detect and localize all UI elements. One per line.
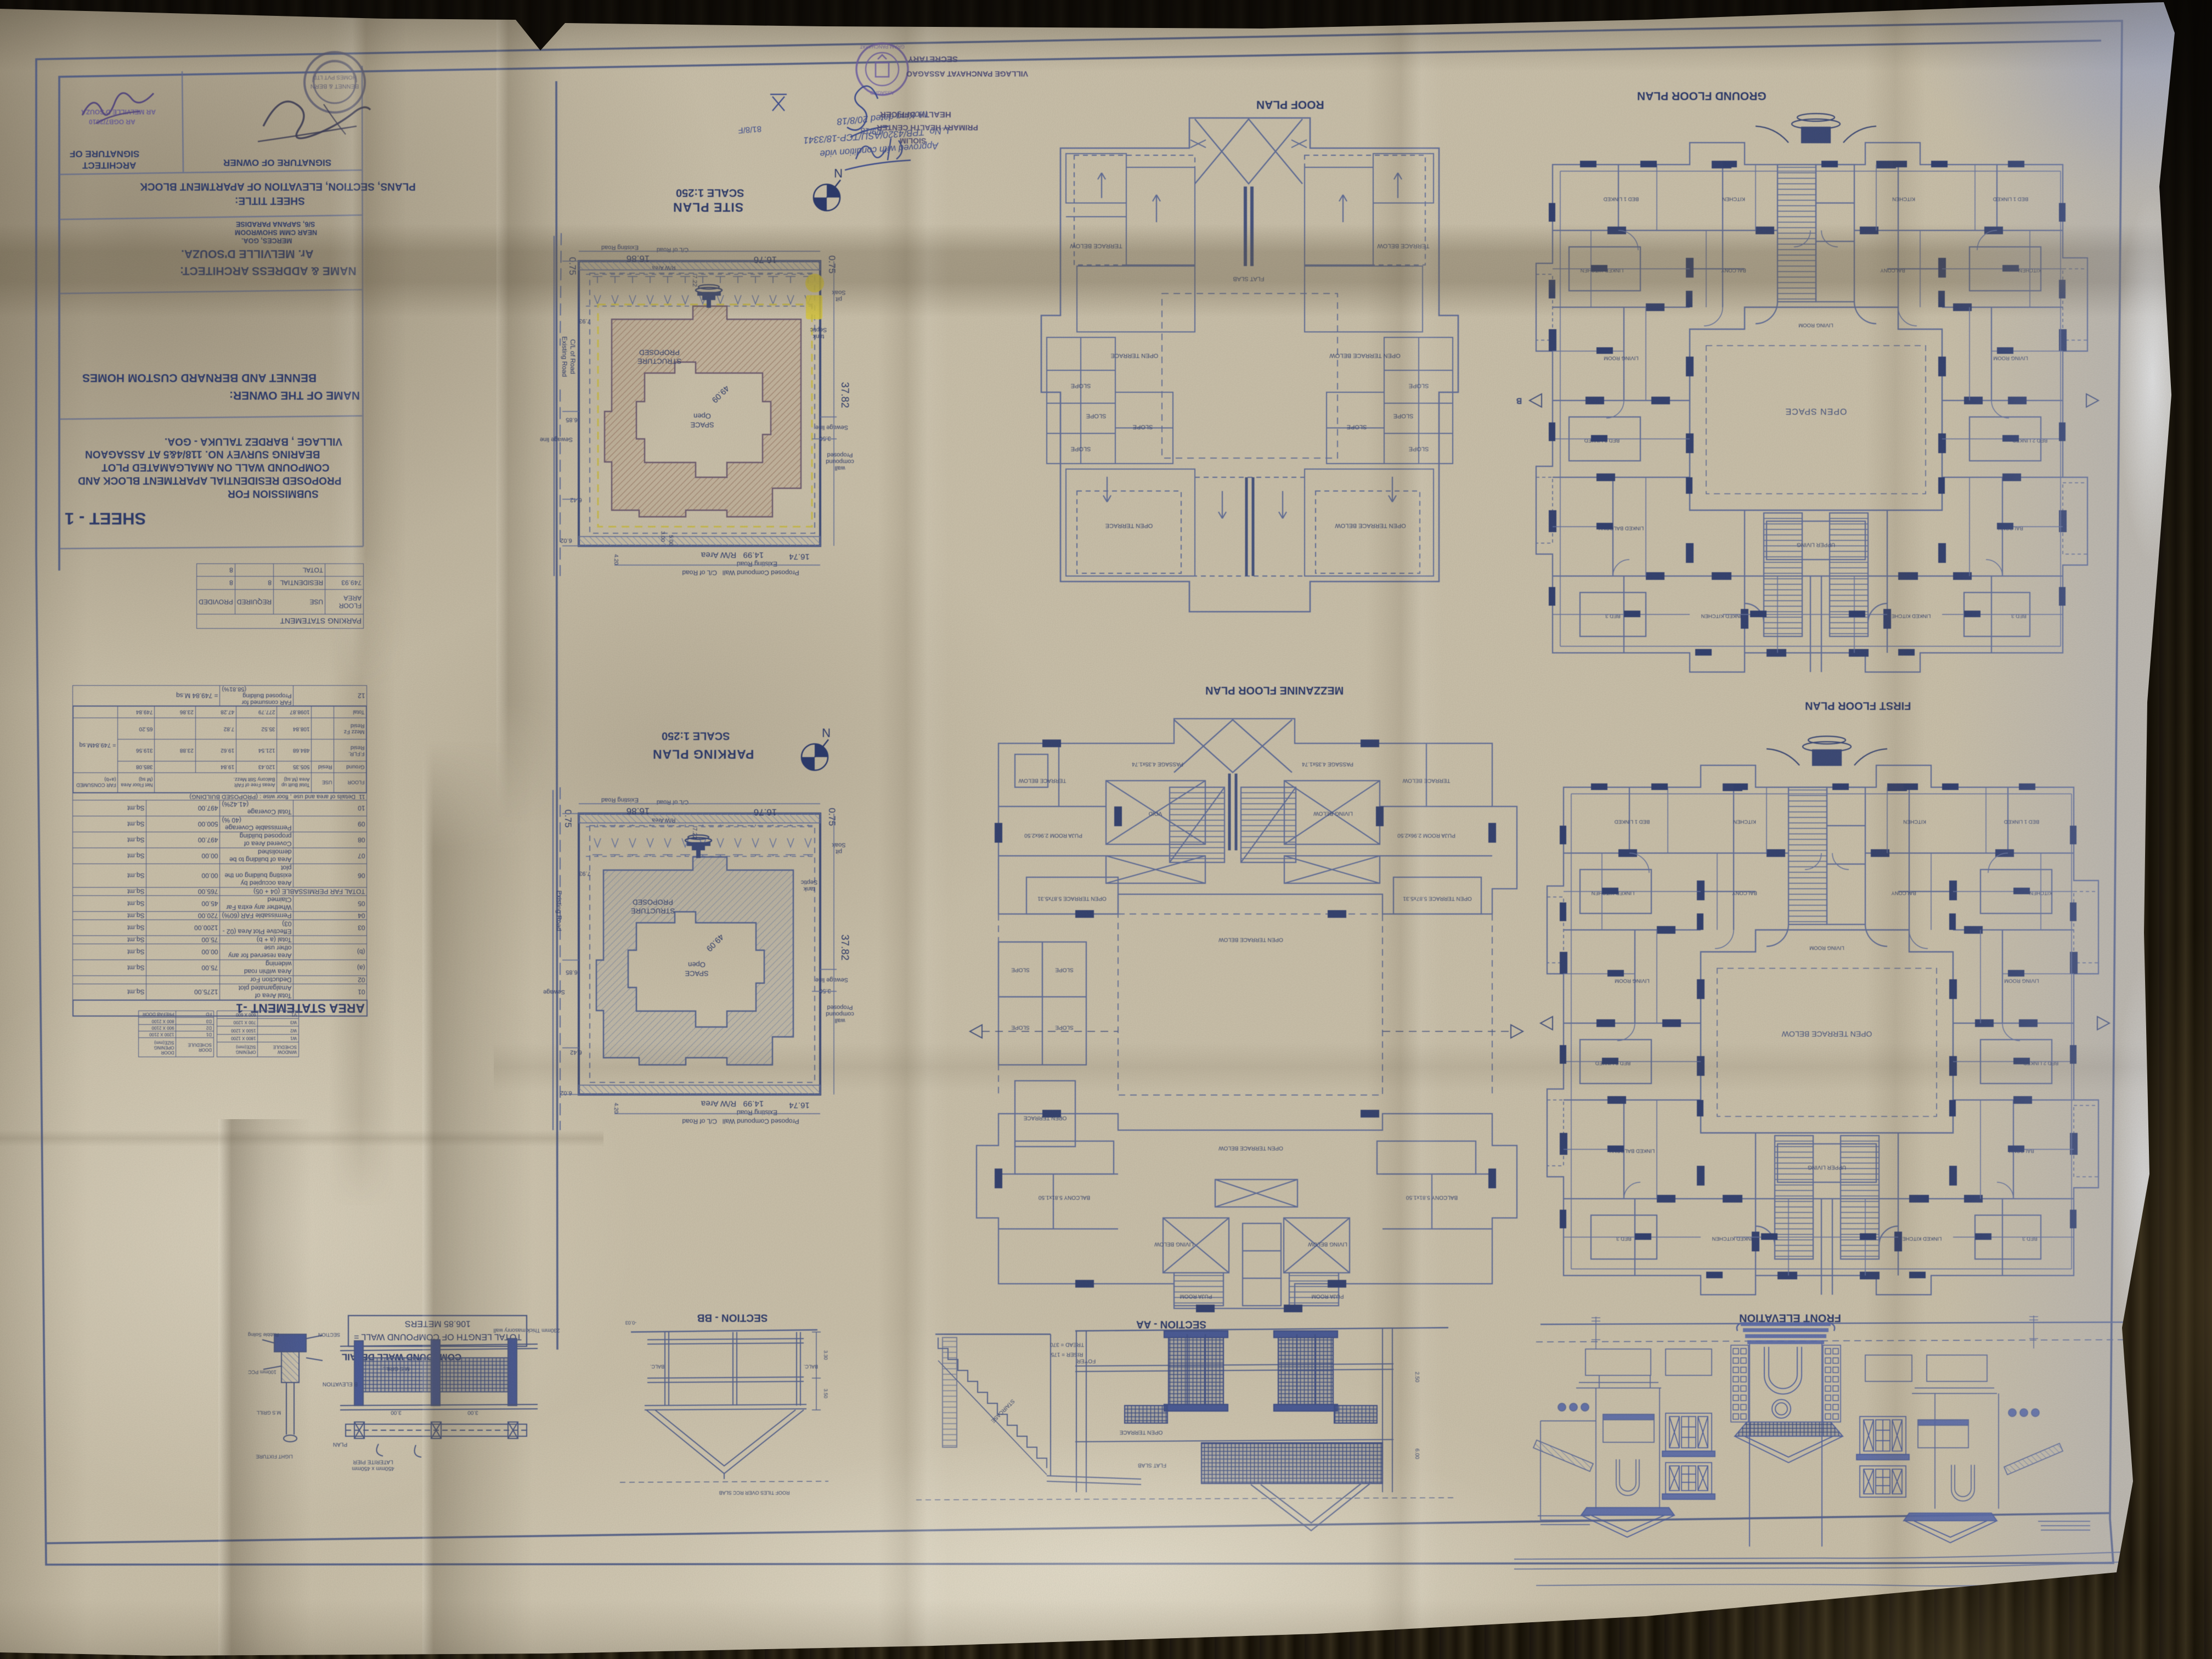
svg-text:Sewage line: Sewage line xyxy=(815,977,848,983)
svg-text:TERRACE BELOW: TERRACE BELOW xyxy=(1070,242,1122,249)
svg-text:pit: pit xyxy=(836,848,842,855)
svg-text:6.85: 6.85 xyxy=(566,416,577,423)
svg-text:BALC.: BALC. xyxy=(650,1364,664,1369)
svg-text:M.S GRILL: M.S GRILL xyxy=(382,1365,410,1372)
svg-text:Existing Road: Existing Road xyxy=(555,890,563,931)
svg-text:BED 3: BED 3 xyxy=(1605,613,1620,619)
svg-text:49.09: 49.09 xyxy=(704,932,726,953)
svg-text:OPEN TERRACE BELOW: OPEN TERRACE BELOW xyxy=(1781,1030,1872,1039)
svg-text:OPEN TERRACE 5.87x5.31: OPEN TERRACE 5.87x5.31 xyxy=(1037,895,1107,901)
svg-text:PLAN: PLAN xyxy=(333,1441,347,1447)
svg-text:OPEN TERRACE BELOW: OPEN TERRACE BELOW xyxy=(1329,352,1401,359)
svg-text:wall: wall xyxy=(835,1017,846,1024)
svg-text:Proposed Compound Wall C/L o: Proposed Compound Wall C/L of Road xyxy=(682,569,799,577)
svg-text:4.20: 4.20 xyxy=(613,1103,619,1114)
svg-text:BED 3: BED 3 xyxy=(2022,1235,2037,1242)
svg-text:LIGHT FIXTURE: LIGHT FIXTURE xyxy=(256,1454,292,1459)
svg-text:Existing Road: Existing Road xyxy=(601,797,639,803)
svg-text:SLOPE: SLOPE xyxy=(1011,1024,1030,1030)
svg-text:SECTION - AA: SECTION - AA xyxy=(1136,1318,1206,1330)
svg-text:7.93: 7.93 xyxy=(579,870,590,877)
svg-text:3.00: 3.00 xyxy=(659,531,665,542)
svg-text:PASSAGE 4.35x1.74: PASSAGE 4.35x1.74 xyxy=(1132,761,1183,767)
svg-text:Sewage line: Sewage line xyxy=(540,436,573,443)
svg-text:Proposed: Proposed xyxy=(827,1004,853,1011)
svg-text:BALCONY: BALCONY xyxy=(1891,890,1916,896)
svg-text:PROPOSED: PROPOSED xyxy=(633,898,673,906)
svg-text:VOID: VOID xyxy=(1149,810,1162,816)
svg-text:SLOPE: SLOPE xyxy=(1133,424,1153,430)
svg-text:C/L of Road: C/L of Road xyxy=(569,339,577,374)
svg-text:LINKED KITCHEN: LINKED KITCHEN xyxy=(1899,1235,1942,1242)
svg-text:OPEN SPACE: OPEN SPACE xyxy=(1785,407,1847,416)
svg-text:B ELEVATION: B ELEVATION xyxy=(323,1381,358,1387)
svg-text:UPPER LIVING: UPPER LIVING xyxy=(1808,1164,1846,1170)
svg-text:16.86: 16.86 xyxy=(627,806,650,816)
svg-text:Proposed Compound Wall C/L o: Proposed Compound Wall C/L of Road xyxy=(682,1118,799,1125)
svg-text:STAIRCASE: STAIRCASE xyxy=(990,1398,1016,1424)
svg-text:FLAT SLAB: FLAT SLAB xyxy=(1138,1462,1166,1468)
svg-text:KITCHEN: KITCHEN xyxy=(1733,819,1756,825)
svg-text:C/L of Road: C/L of Road xyxy=(657,799,689,805)
svg-text:Sewage line: Sewage line xyxy=(815,424,848,431)
svg-text:16.76: 16.76 xyxy=(754,255,777,265)
svg-text:tank: tank xyxy=(803,885,815,892)
svg-text:450mm x 450mm: 450mm x 450mm xyxy=(352,1465,394,1471)
svg-text:37.82: 37.82 xyxy=(839,934,850,961)
svg-text:LIVING ROOM: LIVING ROOM xyxy=(1798,322,1833,328)
svg-text:6.02: 6.02 xyxy=(560,537,572,544)
svg-text:BED 1 LINKED: BED 1 LINKED xyxy=(1615,819,1650,825)
svg-text:0.75: 0.75 xyxy=(827,808,837,826)
svg-text:KITCHEN: KITCHEN xyxy=(1892,196,1915,202)
svg-text:Open: Open xyxy=(693,412,711,420)
svg-text:Existing Road: Existing Road xyxy=(737,560,777,568)
svg-text:LATERITE PIER: LATERITE PIER xyxy=(353,1459,393,1465)
svg-text:BED 1 LINKED: BED 1 LINKED xyxy=(2004,819,2040,825)
svg-text:BALCONY 5.81x1.50: BALCONY 5.81x1.50 xyxy=(1406,1194,1458,1200)
svg-text:tank: tank xyxy=(812,333,824,340)
svg-text:UPPER LIVING: UPPER LIVING xyxy=(1797,541,1835,548)
svg-text:SLOPE: SLOPE xyxy=(1086,413,1107,419)
svg-text:6.42: 6.42 xyxy=(570,496,582,503)
svg-text:LIVING ROOM: LIVING ROOM xyxy=(1615,978,1649,984)
svg-text:PASSAGE 4.35x1.74: PASSAGE 4.35x1.74 xyxy=(1302,761,1353,767)
svg-text:Proposed: Proposed xyxy=(827,452,853,458)
svg-text:16.74: 16.74 xyxy=(789,1101,810,1110)
svg-text:SLOPE: SLOPE xyxy=(1409,382,1429,389)
svg-text:BED 3: BED 3 xyxy=(2011,613,2026,619)
svg-text:BALC.: BALC. xyxy=(804,1364,818,1369)
svg-text:M.S GRILL: M.S GRILL xyxy=(257,1410,281,1415)
svg-text:N: N xyxy=(822,726,831,740)
svg-text:100mm PCC: 100mm PCC xyxy=(248,1369,276,1375)
svg-text:wall: wall xyxy=(835,465,846,471)
svg-text:3.50: 3.50 xyxy=(819,988,831,994)
svg-text:OPEN TERRACE: OPEN TERRACE xyxy=(1119,1429,1163,1435)
svg-text:FLAT SLAB: FLAT SLAB xyxy=(1233,275,1264,282)
svg-text:16.74: 16.74 xyxy=(789,552,810,561)
svg-text:6.85: 6.85 xyxy=(566,969,577,975)
svg-text:4.20: 4.20 xyxy=(613,554,619,565)
svg-text:7.22: 7.22 xyxy=(691,275,698,286)
svg-text:230mm Thick masonry wall: 230mm Thick masonry wall xyxy=(494,1327,560,1333)
svg-text:LINKED KITCHEN: LINKED KITCHEN xyxy=(1888,613,1931,619)
svg-text:SLOPE: SLOPE xyxy=(1071,382,1091,389)
svg-text:BALCONY: BALCONY xyxy=(1880,267,1905,273)
svg-text:BED 3: BED 3 xyxy=(1616,1235,1631,1242)
svg-text:PUJA ROOM: PUJA ROOM xyxy=(1312,1293,1344,1299)
svg-text:OPEN TERRACE BELOW: OPEN TERRACE BELOW xyxy=(1335,522,1406,529)
svg-text:LINKED KITCHEN: LINKED KITCHEN xyxy=(1701,613,1745,619)
svg-text:3.00: 3.00 xyxy=(467,1409,478,1415)
svg-text:16.86: 16.86 xyxy=(627,253,650,264)
svg-text:BED 1 LINKED: BED 1 LINKED xyxy=(1604,196,1639,202)
svg-text:Existing Road: Existing Road xyxy=(561,336,568,377)
svg-text:0.75: 0.75 xyxy=(827,255,837,273)
svg-text:SLOPE: SLOPE xyxy=(1393,413,1414,419)
svg-text:6.02: 6.02 xyxy=(560,1090,572,1096)
svg-text:LIVING ROOM: LIVING ROOM xyxy=(2004,978,2039,984)
svg-text:TERRACE BELOW: TERRACE BELOW xyxy=(1018,777,1066,783)
svg-text:PUJA ROOM 2.96x2.50: PUJA ROOM 2.96x2.50 xyxy=(1024,832,1082,838)
svg-text:ROOF TILES OVER RCC SLAB: ROOF TILES OVER RCC SLAB xyxy=(719,1490,790,1496)
svg-text:3.30: 3.30 xyxy=(823,1350,828,1360)
svg-text:7.93: 7.93 xyxy=(579,318,590,324)
svg-text:Rubble Soling: Rubble Soling xyxy=(248,1332,279,1338)
svg-text:pit: pit xyxy=(836,296,842,302)
svg-text:LIVING ROOM: LIVING ROOM xyxy=(1993,355,2028,361)
svg-text:3.00: 3.00 xyxy=(391,1409,402,1415)
svg-text:37.82: 37.82 xyxy=(839,382,850,408)
svg-text:B: B xyxy=(1516,396,1522,405)
svg-text:OPEN TERRACE: OPEN TERRACE xyxy=(1111,352,1159,359)
svg-text:TERRACE BELOW: TERRACE BELOW xyxy=(1402,777,1450,783)
svg-text:16.76: 16.76 xyxy=(754,807,777,817)
svg-text:Sewage: Sewage xyxy=(543,989,565,995)
svg-text:-0.03: -0.03 xyxy=(625,1320,637,1325)
svg-text:PUJA ROOM: PUJA ROOM xyxy=(1180,1293,1212,1299)
svg-text:BALCONY: BALCONY xyxy=(1732,890,1757,896)
svg-text:2.50: 2.50 xyxy=(1414,1372,1420,1383)
svg-text:SLOPE: SLOPE xyxy=(1409,445,1429,452)
svg-text:14.99 R/W Area: 14.99 R/W Area xyxy=(701,550,764,560)
svg-text:R/W Area: R/W Area xyxy=(652,817,675,823)
svg-text:STRUCTURE: STRUCTURE xyxy=(637,357,681,365)
svg-text:OPEN TERRACE: OPEN TERRACE xyxy=(1023,1115,1066,1121)
svg-text:4/9/18: 4/9/18 xyxy=(860,126,884,137)
svg-text:BALCONY: BALCONY xyxy=(1721,267,1746,273)
svg-text:SECTION: SECTION xyxy=(318,1332,340,1338)
svg-text:OPEN TERRACE BELOW: OPEN TERRACE BELOW xyxy=(1218,1145,1283,1151)
svg-text:Septic: Septic xyxy=(810,326,827,333)
svg-text:C/L of Road: C/L of Road xyxy=(657,246,689,253)
svg-text:RISER = 175: RISER = 175 xyxy=(1051,1351,1083,1357)
svg-text:7.22: 7.22 xyxy=(691,827,698,839)
svg-text:LINKED KITCHEN: LINKED KITCHEN xyxy=(1712,1235,1756,1242)
svg-text:SECTION - BB: SECTION - BB xyxy=(697,1312,768,1323)
svg-text:SLOPE: SLOPE xyxy=(1071,445,1091,452)
svg-text:Septic: Septic xyxy=(800,879,817,885)
svg-text:SLOPE: SLOPE xyxy=(1347,424,1367,430)
svg-text:Existing Road: Existing Road xyxy=(737,1109,777,1116)
svg-text:6.00: 6.00 xyxy=(1414,1448,1420,1459)
svg-text:106.85 METERS: 106.85 METERS xyxy=(405,1319,471,1328)
svg-text:PUJA ROOM 2.96x2.50: PUJA ROOM 2.96x2.50 xyxy=(1397,832,1455,838)
svg-text:KITCHEN: KITCHEN xyxy=(1903,819,1926,825)
svg-text:BED 1 LINKED: BED 1 LINKED xyxy=(1993,196,2029,202)
svg-text:LIVING BELOW: LIVING BELOW xyxy=(1313,810,1353,816)
svg-text:BALCONY 5.81x1.50: BALCONY 5.81x1.50 xyxy=(1038,1194,1090,1200)
svg-text:LIVING ROOM: LIVING ROOM xyxy=(1604,355,1638,361)
svg-text:SLOPE: SLOPE xyxy=(1011,967,1030,973)
svg-text:STRUCTURE: STRUCTURE xyxy=(631,907,675,915)
svg-text:Open: Open xyxy=(688,961,706,969)
svg-text:LIVING BELOW: LIVING BELOW xyxy=(1154,1241,1194,1247)
svg-text:OPEN TERRACE BELOW: OPEN TERRACE BELOW xyxy=(1218,936,1283,943)
svg-text:49.09: 49.09 xyxy=(710,383,731,405)
svg-text:SLOPE: SLOPE xyxy=(1055,1024,1074,1030)
svg-text:6.42: 6.42 xyxy=(570,1049,582,1056)
svg-text:OPEN TERRACE 5.87x5.31: OPEN TERRACE 5.87x5.31 xyxy=(1403,895,1472,901)
svg-text:LIVING BELOW: LIVING BELOW xyxy=(1308,1241,1347,1247)
svg-text:0.75: 0.75 xyxy=(563,809,573,827)
svg-text:LIVING ROOM: LIVING ROOM xyxy=(1809,945,1844,951)
svg-text:KITCHEN: KITCHEN xyxy=(1722,196,1745,202)
svg-text:Existing Road: Existing Road xyxy=(601,244,639,251)
svg-text:SPACE: SPACE xyxy=(690,421,714,429)
svg-text:3.50: 3.50 xyxy=(823,1389,828,1398)
svg-text:compound: compound xyxy=(826,1011,854,1017)
svg-text:PROPOSED: PROPOSED xyxy=(639,348,680,357)
svg-text:SLOPE: SLOPE xyxy=(1055,967,1074,973)
svg-text:R/W Area: R/W Area xyxy=(652,264,675,270)
svg-text:OPEN TERRACE: OPEN TERRACE xyxy=(1105,522,1153,529)
svg-text:TREAD = 370: TREAD = 370 xyxy=(1050,1341,1084,1347)
svg-text:TERRACE BELOW: TERRACE BELOW xyxy=(1377,242,1430,249)
svg-text:5.00: 5.00 xyxy=(668,535,674,546)
svg-text:3.50: 3.50 xyxy=(819,435,831,442)
svg-text:SPACE: SPACE xyxy=(685,969,708,978)
svg-text:81/8/F: 81/8/F xyxy=(738,124,762,135)
svg-text:14.99 R/W Area: 14.99 R/W Area xyxy=(701,1099,764,1108)
svg-text:0.75: 0.75 xyxy=(567,257,578,275)
svg-text:compound: compound xyxy=(826,458,854,465)
